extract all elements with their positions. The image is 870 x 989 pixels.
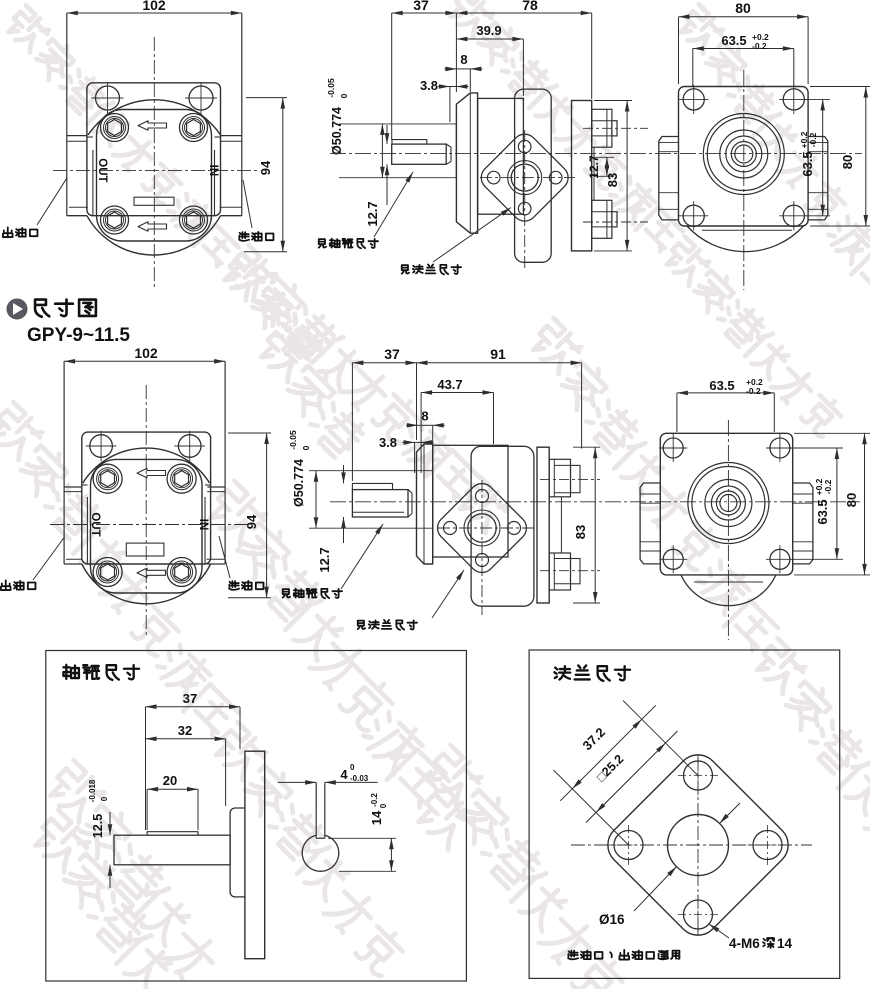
svg-text:IN: IN — [197, 519, 209, 531]
svg-text:83: 83 — [573, 525, 588, 539]
svg-text:94: 94 — [258, 160, 273, 175]
svg-text:-0.2: -0.2 — [370, 793, 379, 807]
svg-text:-0.05: -0.05 — [326, 78, 336, 98]
svg-text:94: 94 — [244, 514, 259, 529]
svg-text:102: 102 — [142, 0, 166, 13]
svg-text:8: 8 — [460, 52, 467, 67]
svg-text:8: 8 — [421, 409, 428, 424]
svg-text:32: 32 — [178, 723, 192, 738]
svg-text:IN: IN — [207, 165, 219, 177]
svg-text:3.8: 3.8 — [420, 78, 438, 93]
svg-text:Ø50.774: Ø50.774 — [330, 107, 344, 155]
svg-text:12.7: 12.7 — [587, 155, 601, 179]
svg-text:-0.2: -0.2 — [752, 41, 767, 51]
svg-text:63.5: 63.5 — [800, 151, 815, 176]
svg-text:OUT: OUT — [96, 158, 108, 182]
svg-text:12.7: 12.7 — [317, 547, 332, 572]
svg-text:14: 14 — [369, 810, 384, 825]
svg-text:-0.2: -0.2 — [746, 386, 761, 396]
svg-text:0: 0 — [379, 803, 388, 808]
svg-text:78: 78 — [522, 0, 538, 13]
svg-text:63.5: 63.5 — [815, 499, 830, 524]
svg-text:12.7: 12.7 — [365, 201, 380, 226]
svg-text:37: 37 — [384, 346, 400, 362]
svg-text:83: 83 — [605, 173, 620, 187]
svg-text:80: 80 — [735, 0, 751, 16]
svg-text:-0.2: -0.2 — [823, 479, 833, 494]
svg-text:0: 0 — [301, 445, 311, 450]
svg-text:3.8: 3.8 — [379, 435, 397, 450]
svg-text:102: 102 — [134, 345, 158, 361]
svg-text:Ø50.774: Ø50.774 — [292, 459, 306, 507]
svg-text:39.9: 39.9 — [476, 23, 501, 38]
svg-text:91: 91 — [490, 346, 506, 362]
svg-text:14: 14 — [777, 936, 793, 951]
svg-text:GPY-9~11.5: GPY-9~11.5 — [27, 325, 130, 346]
svg-text:-0.05: -0.05 — [288, 430, 298, 450]
svg-text:43.7: 43.7 — [437, 377, 462, 392]
svg-text:4: 4 — [340, 767, 348, 782]
svg-text:37: 37 — [183, 691, 197, 706]
svg-text:80: 80 — [844, 493, 859, 507]
svg-text:37: 37 — [413, 0, 429, 13]
svg-text:63.5: 63.5 — [709, 378, 734, 393]
svg-text:Ø16: Ø16 — [599, 912, 625, 927]
svg-text:63.5: 63.5 — [721, 33, 746, 48]
svg-text:80: 80 — [840, 155, 855, 169]
svg-text:12.5: 12.5 — [91, 814, 105, 838]
svg-text:-0.03: -0.03 — [350, 774, 369, 783]
svg-text:4-M6: 4-M6 — [729, 936, 760, 951]
svg-text:-0.018: -0.018 — [88, 779, 97, 802]
svg-text:0: 0 — [100, 796, 109, 801]
svg-text:OUT: OUT — [89, 512, 101, 536]
svg-text:-0.2: -0.2 — [808, 132, 818, 147]
svg-text:0: 0 — [339, 93, 349, 98]
svg-text:20: 20 — [163, 773, 177, 788]
svg-text:0: 0 — [350, 763, 355, 772]
